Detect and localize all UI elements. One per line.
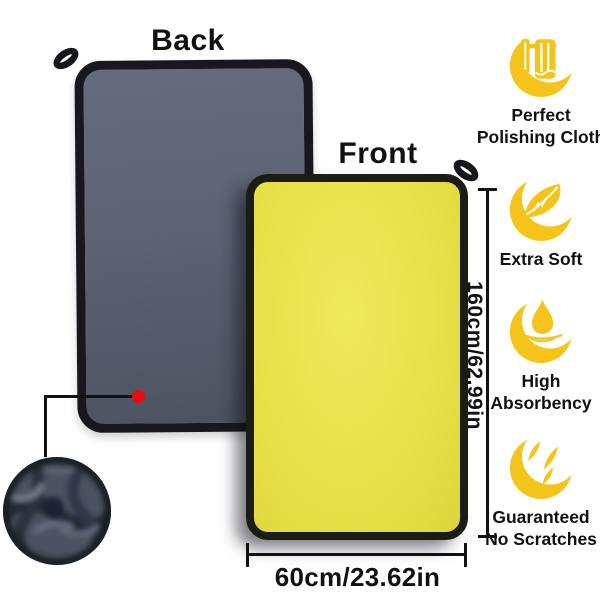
- feature-label-line2: No Scratches: [474, 528, 600, 550]
- feature-label: Perfect Polishing Cloth: [474, 104, 600, 148]
- scratch-marks-icon: [503, 426, 579, 502]
- feature-high-absorbency: High Absorbency: [474, 290, 600, 414]
- feature-no-scratches: Guaranteed No Scratches: [474, 426, 600, 550]
- polishing-towel-icon: [503, 24, 579, 100]
- feature-extra-soft: Extra Soft: [474, 168, 600, 270]
- feature-label-line2: Absorbency: [474, 392, 600, 414]
- back-towel-hanging-loop: [50, 44, 83, 74]
- feature-label-line1: High: [474, 370, 600, 392]
- feature-label: Guaranteed No Scratches: [474, 506, 600, 550]
- magnifier-connector-vertical: [44, 395, 47, 457]
- width-dimension-label: 60cm/23.62in: [235, 562, 480, 593]
- magnifier-connector-horizontal: [44, 395, 136, 398]
- feature-label-line2: Polishing Cloth: [474, 126, 600, 148]
- feature-label-line1: Extra Soft: [474, 248, 600, 270]
- feature-label-line1: Guaranteed: [474, 506, 600, 528]
- feature-perfect-polishing-cloth: Perfect Polishing Cloth: [474, 24, 600, 148]
- feature-label-line1: Perfect: [474, 104, 600, 126]
- front-towel-photo: [246, 174, 468, 540]
- fabric-texture-magnifier: [1, 454, 113, 568]
- feature-label: Extra Soft: [474, 248, 600, 270]
- front-towel-label: Front: [308, 137, 448, 171]
- water-drop-icon: [503, 290, 579, 366]
- feather-icon: [503, 168, 579, 244]
- width-dimension-line: [246, 553, 467, 556]
- product-infographic: Back Front 160cm/62.99in 60cm/23.62in: [0, 0, 600, 600]
- back-towel-label: Back: [118, 24, 258, 58]
- fabric-sample-marker-dot: [132, 390, 145, 403]
- feature-label: High Absorbency: [474, 370, 600, 414]
